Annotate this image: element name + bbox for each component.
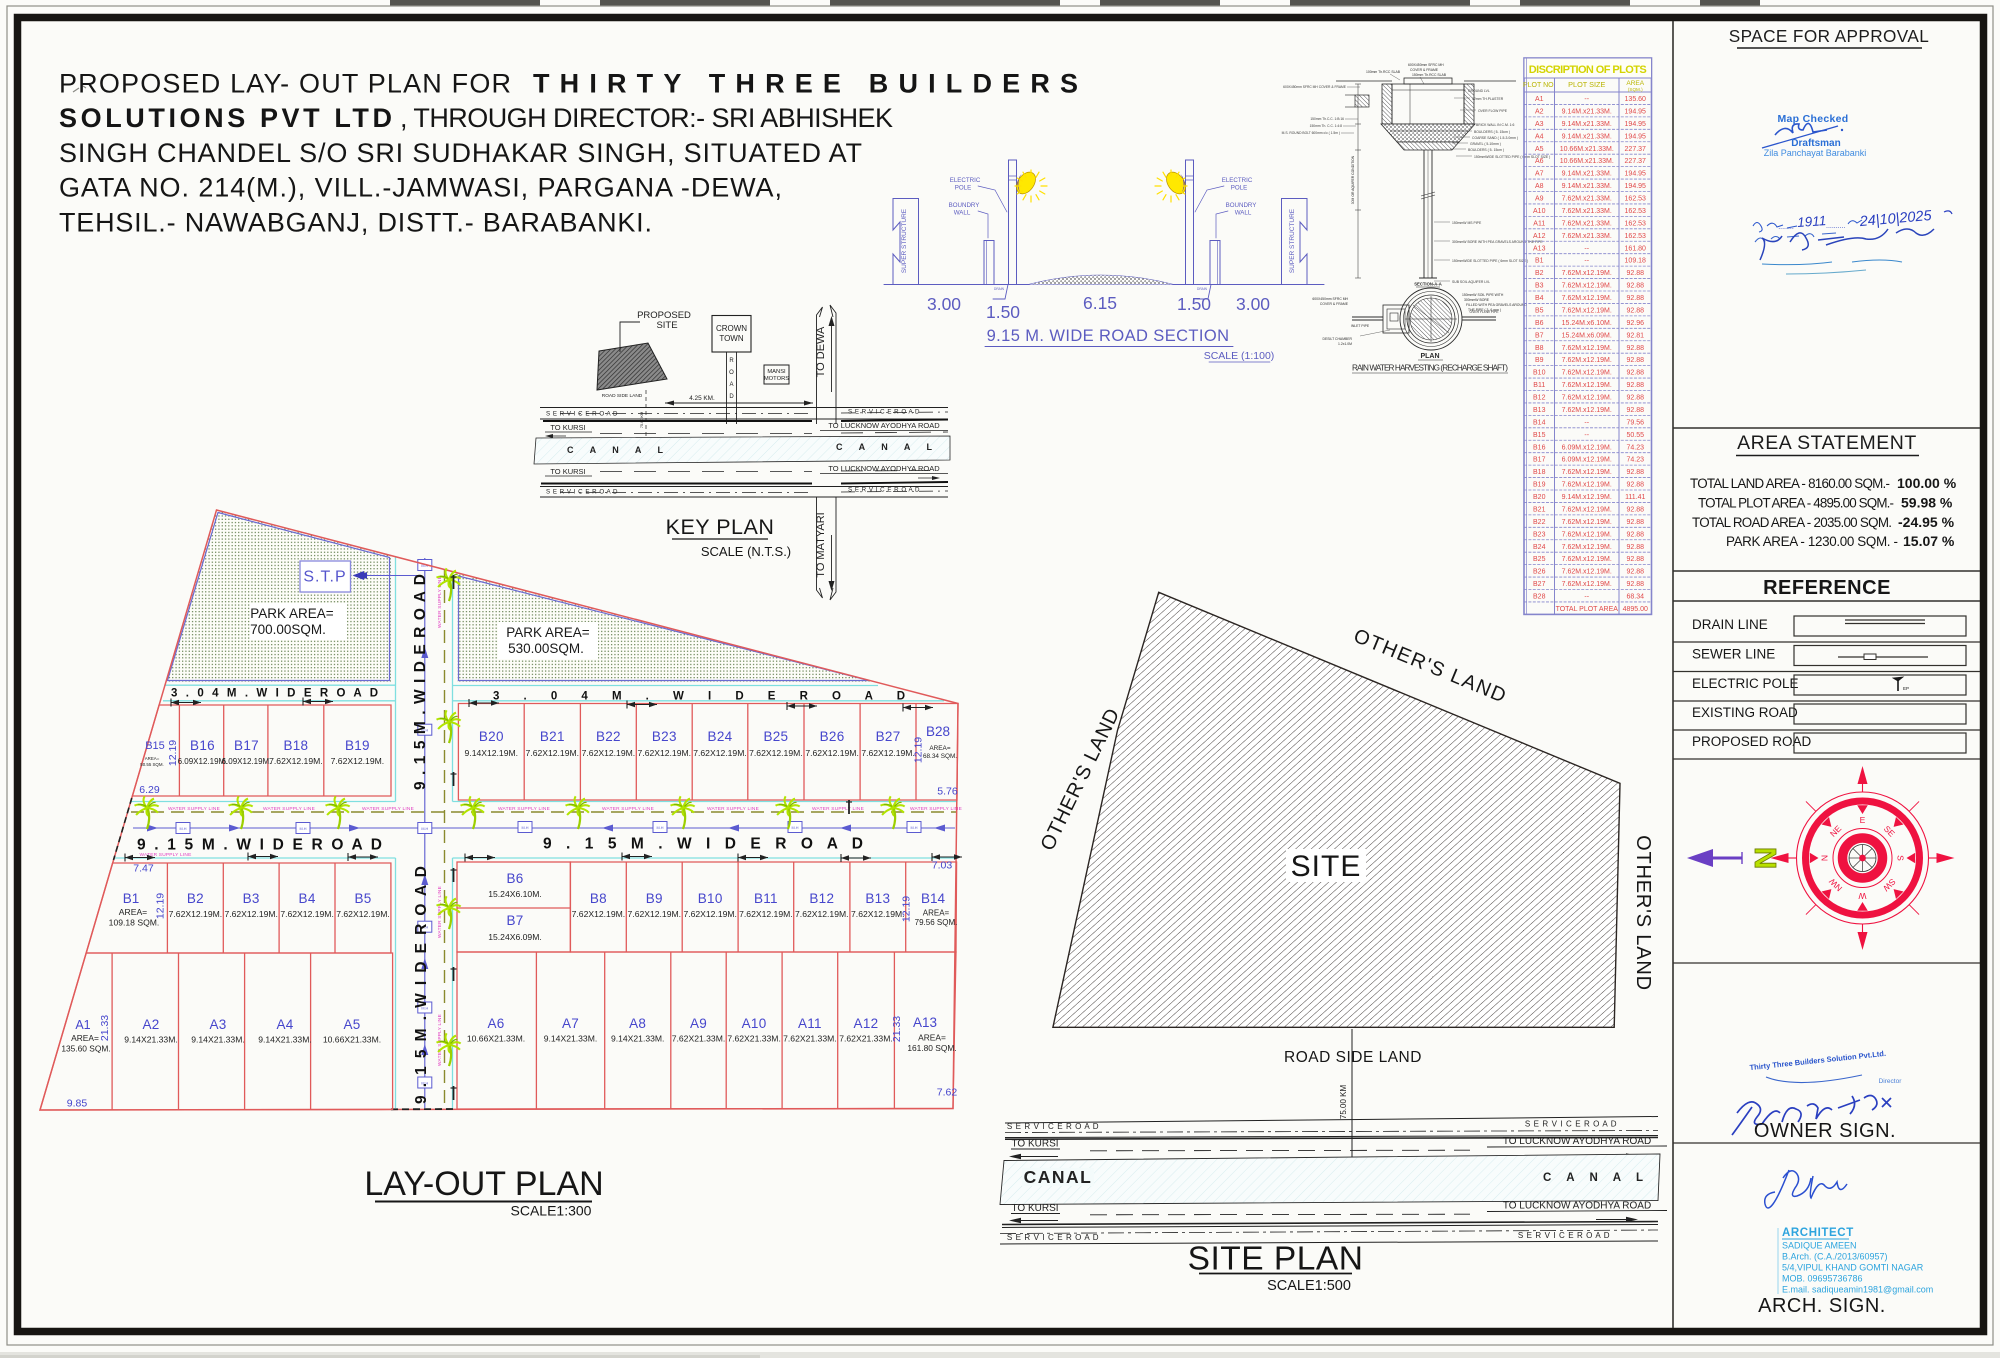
svg-text:6.09X12.19M.: 6.09X12.19M. xyxy=(178,757,228,766)
svg-text:A3: A3 xyxy=(1535,121,1544,128)
svg-text:7.62M.x21.33M.: 7.62M.x21.33M. xyxy=(1562,220,1612,227)
svg-text:SADIQUE AMEEN: SADIQUE AMEEN xyxy=(1782,1241,1857,1251)
svg-text:SITE: SITE xyxy=(1291,850,1362,883)
svg-text:B7: B7 xyxy=(1535,332,1544,339)
svg-text:CROWN: CROWN xyxy=(716,324,747,333)
svg-text:POLE: POLE xyxy=(1231,185,1248,192)
svg-text:150mm Th. C.C. 1:4:8: 150mm Th. C.C. 1:4:8 xyxy=(1310,124,1343,128)
svg-text:S E R V I C E R O A D: S E R V I C E R O A D xyxy=(848,409,920,416)
svg-text:15.24X6.10M.: 15.24X6.10M. xyxy=(488,889,542,899)
svg-text:7.62X12.19M.: 7.62X12.19M. xyxy=(582,748,636,758)
svg-text:161.80: 161.80 xyxy=(1625,245,1647,252)
svg-text:B12: B12 xyxy=(1533,395,1546,402)
svg-text:BOUNDRY: BOUNDRY xyxy=(949,202,980,209)
svg-text:SECTION-A-A: SECTION-A-A xyxy=(1414,282,1441,287)
svg-text:SCALE (N.T.S.): SCALE (N.T.S.) xyxy=(701,544,791,559)
svg-text:A2: A2 xyxy=(1535,108,1544,115)
svg-text:TOWN: TOWN xyxy=(719,334,744,343)
svg-text:150mm Th.C.C. 1:B:16: 150mm Th.C.C. 1:B:16 xyxy=(1310,117,1344,121)
svg-text:15.24M.x6.10M.: 15.24M.x6.10M. xyxy=(1562,320,1612,327)
svg-text:68.34: 68.34 xyxy=(1626,594,1644,601)
svg-text:B.Arch. (C.A./2013/60957): B.Arch. (C.A./2013/60957) xyxy=(1782,1252,1888,1262)
svg-text:92.96: 92.96 xyxy=(1626,320,1644,327)
svg-text:B27: B27 xyxy=(876,729,901,744)
svg-text:SITE PLAN: SITE PLAN xyxy=(1188,1241,1364,1278)
svg-text:RAIN WATER HARVESTING (RECH: RAIN WATER HARVESTING (RECHARGE SHAFT) xyxy=(1352,364,1508,373)
svg-text:92.88: 92.88 xyxy=(1626,544,1644,551)
svg-text:D: D xyxy=(729,394,734,400)
svg-text:7.62M.x12.19M.: 7.62M.x12.19M. xyxy=(1562,395,1612,402)
svg-text:7.62X12.19M.: 7.62X12.19M. xyxy=(795,909,849,919)
svg-text:600X450mm SFRC MH: 600X450mm SFRC MH xyxy=(1408,63,1444,67)
svg-text:7.62M.x12.19M.: 7.62M.x12.19M. xyxy=(1562,295,1612,302)
svg-text:MOTORS: MOTORS xyxy=(764,376,789,382)
svg-text:A7: A7 xyxy=(562,1016,579,1031)
svg-text:7.62X12.19M.: 7.62X12.19M. xyxy=(269,756,323,766)
svg-text:REFERENCE: REFERENCE xyxy=(1763,577,1891,599)
svg-text:161.80 SQM.: 161.80 SQM. xyxy=(907,1043,956,1053)
svg-text:C A N A L: C A N A L xyxy=(1543,1172,1643,1184)
svg-text:B2: B2 xyxy=(1535,270,1544,277)
svg-text:7.62X12.19M.: 7.62X12.19M. xyxy=(861,748,915,758)
svg-text:B9: B9 xyxy=(1535,357,1544,364)
svg-text:A13: A13 xyxy=(1533,245,1546,252)
svg-text:AREA=: AREA= xyxy=(929,745,950,752)
svg-text:..........: .......... xyxy=(1826,223,1846,230)
svg-text:B22: B22 xyxy=(1533,519,1546,526)
svg-text:WATER SUPPLY LINE: WATER SUPPLY LINE xyxy=(812,806,864,812)
svg-text:A10: A10 xyxy=(742,1016,767,1031)
svg-text:92.88: 92.88 xyxy=(1626,531,1644,538)
svg-text:B18: B18 xyxy=(283,738,308,753)
svg-text:A1: A1 xyxy=(75,1018,90,1032)
svg-text:7.62X12.19M.: 7.62X12.19M. xyxy=(693,748,747,758)
svg-text:7.62M.x12.19M.: 7.62M.x12.19M. xyxy=(1562,531,1612,538)
svg-text:B16: B16 xyxy=(190,738,215,753)
svg-text:9.14M.x21.33M.: 9.14M.x21.33M. xyxy=(1562,133,1612,140)
svg-text:7.62M.x12.19M.: 7.62M.x12.19M. xyxy=(1562,469,1612,476)
svg-text:227.37: 227.37 xyxy=(1625,158,1647,165)
svg-text:AREA=: AREA= xyxy=(918,1033,946,1043)
svg-text:7.62M.x21.33M.: 7.62M.x21.33M. xyxy=(1562,233,1612,240)
svg-text:6.29: 6.29 xyxy=(139,784,160,796)
svg-text:ROAD SIDE LAND: ROAD SIDE LAND xyxy=(1284,1049,1422,1066)
svg-text:92.88: 92.88 xyxy=(1626,357,1644,364)
svg-text:7.62M.x12.19M.: 7.62M.x12.19M. xyxy=(1562,283,1612,290)
svg-text:WATER SUPPLY LINE: WATER SUPPLY LINE xyxy=(498,806,550,812)
svg-text:N: N xyxy=(1748,847,1783,869)
svg-text:Director: Director xyxy=(1879,1078,1903,1085)
svg-text:7.62M.x12.19M.: 7.62M.x12.19M. xyxy=(1562,307,1612,314)
svg-text:9 . 1 5 M . W I D E R O: 9 . 1 5 M . W I D E R O A D xyxy=(137,837,382,854)
svg-text:FILLED WITH PEA GRAVELS AROUND: FILLED WITH PEA GRAVELS AROUND xyxy=(1466,303,1527,307)
svg-text:9.14X21.33M.: 9.14X21.33M. xyxy=(258,1035,312,1045)
svg-text:B28: B28 xyxy=(1533,594,1546,601)
svg-text:--: -- xyxy=(1584,96,1589,103)
svg-text:WALL: WALL xyxy=(1235,210,1252,217)
svg-text:150mmW SOIL PIPE WITH: 150mmW SOIL PIPE WITH xyxy=(1462,293,1504,297)
svg-text:7.62X21.33M.: 7.62X21.33M. xyxy=(839,1034,893,1044)
svg-text:-24.95 %: -24.95 % xyxy=(1898,514,1955,530)
svg-text:5/4,VIPUL KHAND GOMTI NAGAR: 5/4,VIPUL KHAND GOMTI NAGAR xyxy=(1782,1263,1924,1273)
svg-text:700.00SQM.: 700.00SQM. xyxy=(250,622,326,637)
svg-text:7.62M.x12.19M.: 7.62M.x12.19M. xyxy=(1562,345,1612,352)
svg-text:A8: A8 xyxy=(629,1016,646,1031)
svg-text:300mmW BORE WITH PEA GRAVELS A: 300mmW BORE WITH PEA GRAVELS AROUND THE … xyxy=(1452,240,1543,244)
svg-text:92.88: 92.88 xyxy=(1626,307,1644,314)
svg-text:135.60 SQM.: 135.60 SQM. xyxy=(61,1044,110,1054)
svg-text:B23: B23 xyxy=(1533,531,1546,538)
svg-text:92.88: 92.88 xyxy=(1626,506,1644,513)
svg-text:B11: B11 xyxy=(1533,382,1545,389)
svg-text:E.mail. sadiqueamin1981@gmail.: E.mail. sadiqueamin1981@gmail.com xyxy=(1782,1285,1933,1295)
svg-text:Map Checked: Map Checked xyxy=(1778,113,1849,125)
svg-text:C A N A L: C A N A L xyxy=(567,445,664,455)
svg-text:162.53: 162.53 xyxy=(1625,220,1647,227)
svg-text:SCALE (1:100): SCALE (1:100) xyxy=(1204,350,1275,362)
svg-text:92.88: 92.88 xyxy=(1626,345,1644,352)
svg-text:B19: B19 xyxy=(1533,482,1546,489)
svg-text:B21: B21 xyxy=(1533,506,1546,513)
svg-text:B17: B17 xyxy=(234,738,259,753)
svg-text:R: R xyxy=(729,358,734,364)
svg-text:600X450mm SFRC MH: 600X450mm SFRC MH xyxy=(1312,297,1348,301)
svg-text:7.62X12.19M.: 7.62X12.19M. xyxy=(851,909,905,919)
svg-text:SEWER LINE: SEWER LINE xyxy=(1692,647,1775,662)
svg-text:194.95: 194.95 xyxy=(1625,183,1647,190)
svg-text:12mm TH.PLASTER: 12mm TH.PLASTER xyxy=(1472,97,1504,101)
svg-text:PARK AREA=: PARK AREA= xyxy=(506,625,590,640)
svg-text:1.50: 1.50 xyxy=(986,302,1020,322)
svg-text:7.62X12.19M.: 7.62X12.19M. xyxy=(683,909,737,919)
svg-text:M.S. ROUND BOLT 600mm c/c ( 1.: M.S. ROUND BOLT 600mm c/c ( 1.5m ) xyxy=(1282,131,1340,135)
svg-text:BOULDERS ( 5- 15cm ): BOULDERS ( 5- 15cm ) xyxy=(1474,130,1510,134)
svg-text:POLE: POLE xyxy=(955,185,972,192)
svg-text:4.25 KM.: 4.25 KM. xyxy=(689,395,715,402)
svg-text:75.00 KM: 75.00 KM xyxy=(640,412,644,428)
svg-text:B7: B7 xyxy=(506,913,523,928)
svg-text:B26: B26 xyxy=(1533,569,1546,576)
svg-text:1.2x1.0M: 1.2x1.0M xyxy=(1338,342,1352,346)
svg-text:B8: B8 xyxy=(590,891,607,906)
svg-text:7.62M.x21.33M.: 7.62M.x21.33M. xyxy=(1562,208,1612,215)
svg-text:CANAL: CANAL xyxy=(1024,1167,1093,1187)
svg-text:GATA NO. 214(M.), VILL.-JAMWAS: GATA NO. 214(M.), VILL.-JAMWASI, PARGANA… xyxy=(59,173,782,203)
svg-text:M.H: M.H xyxy=(657,826,664,830)
svg-text:150mmW MS PIPE: 150mmW MS PIPE xyxy=(1452,221,1482,225)
svg-text:7.62M.x12.19M.: 7.62M.x12.19M. xyxy=(1562,506,1612,513)
svg-text:--: -- xyxy=(1584,594,1589,601)
svg-text:PLOT NO.: PLOT NO. xyxy=(1523,82,1556,89)
svg-text:9.85: 9.85 xyxy=(67,1098,88,1110)
svg-text:ROAD SIDE LAND: ROAD SIDE LAND xyxy=(602,393,643,399)
svg-text:7.62M.x12.19M.: 7.62M.x12.19M. xyxy=(1562,569,1612,576)
svg-text:B4: B4 xyxy=(299,891,316,906)
svg-text:M.H: M.H xyxy=(300,827,307,831)
svg-text:BRICK WALL IN C.M. 1:6: BRICK WALL IN C.M. 1:6 xyxy=(1476,123,1514,127)
svg-text:92.88: 92.88 xyxy=(1626,482,1644,489)
svg-text:1911: 1911 xyxy=(1797,213,1827,230)
svg-text:194.95: 194.95 xyxy=(1625,133,1647,140)
svg-text:B12: B12 xyxy=(809,891,834,906)
svg-text:M.H: M.H xyxy=(180,827,187,831)
svg-text:N: N xyxy=(1820,855,1830,861)
svg-text:TO KURSI: TO KURSI xyxy=(1011,1139,1058,1150)
svg-text:TO KURSI: TO KURSI xyxy=(550,423,585,432)
svg-text:6.09M.x12.19M.: 6.09M.x12.19M. xyxy=(1562,457,1612,464)
svg-text:A4: A4 xyxy=(276,1017,293,1032)
svg-text:92.88: 92.88 xyxy=(1626,581,1644,588)
svg-text:194.95: 194.95 xyxy=(1625,121,1647,128)
svg-text:--: -- xyxy=(1584,245,1589,252)
svg-text:S E R V I C E R O A D: S E R V I C E R O A D xyxy=(848,487,920,494)
svg-text:92.81: 92.81 xyxy=(1626,332,1644,339)
svg-text:9.14M.x21.33M.: 9.14M.x21.33M. xyxy=(1562,121,1612,128)
svg-text:A9: A9 xyxy=(690,1016,707,1031)
svg-text:7.62M.x12.19M.: 7.62M.x12.19M. xyxy=(1562,482,1612,489)
svg-text:A: A xyxy=(729,382,733,388)
svg-text:WATER SUPPLY LINE: WATER SUPPLY LINE xyxy=(437,1014,443,1066)
svg-text:TOTAL LAND AREA - 8160.00 S: TOTAL LAND AREA - 8160.00 SQM.- xyxy=(1690,476,1890,491)
svg-text:B6: B6 xyxy=(1535,320,1544,327)
svg-text:TO KURSI: TO KURSI xyxy=(550,467,585,476)
svg-text:92.88: 92.88 xyxy=(1626,407,1644,414)
svg-text:A3: A3 xyxy=(209,1017,226,1032)
svg-text:7.62X21.33M.: 7.62X21.33M. xyxy=(672,1034,726,1044)
svg-text:AREA=: AREA= xyxy=(923,909,950,918)
svg-text:7.62: 7.62 xyxy=(937,1087,958,1099)
svg-text:92.88: 92.88 xyxy=(1626,270,1644,277)
svg-text:9.14M.x21.33M.: 9.14M.x21.33M. xyxy=(1562,171,1612,178)
svg-text:B1: B1 xyxy=(123,891,140,906)
svg-text:7.62X12.19M.: 7.62X12.19M. xyxy=(331,756,385,766)
svg-text:B10: B10 xyxy=(1533,370,1546,377)
svg-text:TO DEWA: TO DEWA xyxy=(815,326,827,377)
svg-text:30M OR AQUIFER CONDITION: 30M OR AQUIFER CONDITION xyxy=(1351,155,1355,204)
svg-text:LAY-OUT PLAN: LAY-OUT PLAN xyxy=(364,1165,603,1203)
svg-text:TO MATYARI: TO MATYARI xyxy=(815,512,827,577)
svg-text:7.62M.x12.19M.: 7.62M.x12.19M. xyxy=(1562,544,1612,551)
svg-text:COVER & FRAME: COVER & FRAME xyxy=(1320,302,1349,306)
svg-text:92.88: 92.88 xyxy=(1626,519,1644,526)
svg-text:TO LUCKNOW AYODHYA ROAD: TO LUCKNOW AYODHYA ROAD xyxy=(1503,1201,1651,1212)
svg-text:227.37: 227.37 xyxy=(1625,146,1647,153)
svg-text:S E R V I C E R O A D: S E R V I C E R O A D xyxy=(1007,1122,1099,1131)
svg-text:7.62M.x12.19M.: 7.62M.x12.19M. xyxy=(1562,357,1612,364)
svg-text:A1: A1 xyxy=(1535,96,1544,103)
svg-text:PLOT SIZE: PLOT SIZE xyxy=(1568,80,1605,89)
svg-text:7.62X12.19M.: 7.62X12.19M. xyxy=(336,909,390,919)
svg-text:A9: A9 xyxy=(1535,196,1544,203)
svg-text:A11: A11 xyxy=(1533,220,1545,227)
svg-text:AREA STATEMENT: AREA STATEMENT xyxy=(1737,432,1917,454)
svg-text:74.23: 74.23 xyxy=(1626,444,1644,451)
svg-text:E: E xyxy=(1860,815,1866,825)
svg-text:12.19: 12.19 xyxy=(155,893,167,919)
svg-text:100mm Th.RCC SLAB: 100mm Th.RCC SLAB xyxy=(1366,70,1401,74)
svg-text:150mmWIDE SLOTTED PIPE ( 6mm S: 150mmWIDE SLOTTED PIPE ( 6mm SLOT SIZE ) xyxy=(1452,259,1528,263)
svg-text:74.23: 74.23 xyxy=(1626,457,1644,464)
svg-text:A2: A2 xyxy=(142,1017,159,1032)
svg-text:7.03: 7.03 xyxy=(932,860,953,872)
svg-text:TEHSIL.- NAWABGANJ, DISTT.- BA: TEHSIL.- NAWABGANJ, DISTT.- BARABANKI. xyxy=(59,207,652,237)
svg-text:162.53: 162.53 xyxy=(1625,233,1647,240)
svg-text:S E R V I C E R O A D: S E R V I C E R O A D xyxy=(546,411,618,418)
svg-text:92.88: 92.88 xyxy=(1626,382,1644,389)
svg-text:9 . 1 5 M . W I D E R O: 9 . 1 5 M . W I D E R O A D xyxy=(413,866,430,1104)
svg-text:WATER SUPPLY LINE: WATER SUPPLY LINE xyxy=(707,806,759,812)
svg-text:7.62X12.19M.: 7.62X12.19M. xyxy=(739,909,793,919)
svg-text:B3: B3 xyxy=(243,891,260,906)
svg-text:9.14X21.33M.: 9.14X21.33M. xyxy=(611,1034,665,1044)
svg-text:TO LUCKNOW AYODHYA ROAD: TO LUCKNOW AYODHYA ROAD xyxy=(828,464,940,473)
svg-text:21.33: 21.33 xyxy=(891,1016,903,1042)
svg-text:MOB. 09695736786: MOB. 09695736786 xyxy=(1782,1274,1863,1284)
svg-text:79.56: 79.56 xyxy=(1626,419,1644,426)
svg-text:B20: B20 xyxy=(479,729,504,744)
svg-text:A6: A6 xyxy=(1535,158,1544,165)
svg-text:B10: B10 xyxy=(698,891,723,906)
svg-text:SITE: SITE xyxy=(656,320,677,331)
svg-text:6.09X12.19M.: 6.09X12.19M. xyxy=(222,757,272,766)
svg-text:B24: B24 xyxy=(708,729,733,744)
svg-text:300mmW BORE: 300mmW BORE xyxy=(1464,298,1490,302)
svg-text:SUB SOIL AQUIFER LVL: SUB SOIL AQUIFER LVL xyxy=(1452,280,1490,284)
svg-text:B25: B25 xyxy=(1533,556,1546,563)
svg-text:15.24X6.09M.: 15.24X6.09M. xyxy=(488,932,542,942)
svg-text:ELECTRIC: ELECTRIC xyxy=(1222,177,1253,184)
svg-text:DESILT CHAMBER: DESILT CHAMBER xyxy=(1323,337,1353,341)
svg-text:KEY PLAN: KEY PLAN xyxy=(666,515,775,539)
svg-text:A10: A10 xyxy=(1533,208,1546,215)
svg-text:7.62X12.19M.: 7.62X12.19M. xyxy=(169,909,223,919)
svg-text:BOUNDRY: BOUNDRY xyxy=(1226,202,1257,209)
svg-text:WATER SUPPLY LINE: WATER SUPPLY LINE xyxy=(362,806,414,812)
svg-text:B13: B13 xyxy=(1533,407,1546,414)
svg-text:, THROUGH DIRECTOR:- SRI ABHIS: , THROUGH DIRECTOR:- SRI ABHISHEK xyxy=(400,103,893,133)
svg-text:S E R V I C E R O A D: S E R V I C E R O A D xyxy=(546,489,618,496)
svg-text:135.60: 135.60 xyxy=(1625,96,1647,103)
svg-text:M.H: M.H xyxy=(522,826,529,830)
svg-text:GRAVEL ( 5-10mm ): GRAVEL ( 5-10mm ) xyxy=(1470,142,1501,146)
svg-text:WALL: WALL xyxy=(954,210,971,217)
svg-text:50.55 SQM.: 50.55 SQM. xyxy=(140,762,163,767)
svg-text:........: ........ xyxy=(1778,224,1794,231)
svg-text:7.62X12.19M.: 7.62X12.19M. xyxy=(628,909,682,919)
svg-text:--: -- xyxy=(1584,432,1589,439)
svg-text:7.62M.x21.33M.: 7.62M.x21.33M. xyxy=(1562,196,1612,203)
svg-text:7.62X21.33M.: 7.62X21.33M. xyxy=(783,1034,837,1044)
svg-text:THE PIPE ( 3- 6 mm ): THE PIPE ( 3- 6 mm ) xyxy=(1468,308,1501,312)
svg-text:92.88: 92.88 xyxy=(1626,395,1644,402)
svg-text:59.98 %: 59.98 % xyxy=(1901,495,1953,511)
svg-text:SINGH CHANDEL S/O SRI SUDHAKAR: SINGH CHANDEL S/O SRI SUDHAKAR SINGH, SI… xyxy=(59,138,862,168)
svg-text:ARCHITECT: ARCHITECT xyxy=(1782,1227,1854,1239)
svg-text:7.62M.x12.19M.: 7.62M.x12.19M. xyxy=(1562,270,1612,277)
svg-text:194.95: 194.95 xyxy=(1625,171,1647,178)
svg-text:TO LUCKNOW AYODHYA ROAD: TO LUCKNOW AYODHYA ROAD xyxy=(1503,1136,1651,1147)
svg-text:7.62M.x12.19M.: 7.62M.x12.19M. xyxy=(1562,519,1612,526)
svg-text:A5: A5 xyxy=(1535,146,1544,153)
svg-text:WATER SUPPLY LINE: WATER SUPPLY LINE xyxy=(910,806,962,812)
svg-text:DRAIN LINE: DRAIN LINE xyxy=(1692,617,1768,632)
svg-text:7.62M.x12.19M.: 7.62M.x12.19M. xyxy=(1562,370,1612,377)
svg-text:7.47: 7.47 xyxy=(133,863,154,875)
svg-text:9 . 1 5 M . W I D E R O: 9 . 1 5 M . W I D E R O A D xyxy=(412,574,429,790)
svg-text:TO KURSI: TO KURSI xyxy=(1011,1203,1058,1214)
svg-text:92.88: 92.88 xyxy=(1626,469,1644,476)
svg-text:B13: B13 xyxy=(865,891,890,906)
svg-text:111.41: 111.41 xyxy=(1625,494,1645,501)
svg-text:TOTAL PLOT AREA - 4895.00 SQ: TOTAL PLOT AREA - 4895.00 SQM.- xyxy=(1698,496,1894,511)
svg-text:7.62X12.19M.: 7.62X12.19M. xyxy=(638,748,692,758)
svg-text:109.18 SQM.: 109.18 SQM. xyxy=(109,918,160,928)
svg-text:B4: B4 xyxy=(1535,295,1544,302)
svg-text:DISCRIPTION OF PLOTS: DISCRIPTION OF PLOTS xyxy=(1529,64,1647,76)
svg-text:DRAIN: DRAIN xyxy=(994,287,1005,291)
svg-text:SPACE FOR APPROVAL: SPACE FOR APPROVAL xyxy=(1729,26,1929,46)
svg-text:9.14M.x21.33M.: 9.14M.x21.33M. xyxy=(1562,108,1612,115)
svg-text:A5: A5 xyxy=(343,1017,360,1032)
svg-text:194.95: 194.95 xyxy=(1625,108,1647,115)
svg-text:9.14X12.19M.: 9.14X12.19M. xyxy=(465,748,519,758)
svg-text:SCALE1:300: SCALE1:300 xyxy=(511,1203,592,1219)
svg-text:OWNER SIGN.: OWNER SIGN. xyxy=(1754,1120,1896,1142)
svg-text:92.88: 92.88 xyxy=(1626,370,1644,377)
svg-text:15.07 %: 15.07 % xyxy=(1903,533,1955,549)
svg-text:M.H: M.H xyxy=(792,826,799,830)
svg-text:600X450mm SFRC MH COVER & FRAM: 600X450mm SFRC MH COVER & FRAME xyxy=(1283,85,1347,89)
svg-text:AREA=: AREA= xyxy=(119,907,147,917)
svg-text:3.00: 3.00 xyxy=(1236,294,1270,314)
svg-text:B19: B19 xyxy=(345,738,370,753)
svg-text:S: S xyxy=(1896,855,1906,861)
svg-text:162.53: 162.53 xyxy=(1625,196,1647,203)
svg-text:109.18: 109.18 xyxy=(1625,258,1647,265)
svg-text:162.53: 162.53 xyxy=(1625,208,1647,215)
svg-text:--: -- xyxy=(1584,419,1589,426)
svg-text:WATER SUPPLY LINE: WATER SUPPLY LINE xyxy=(263,806,315,812)
svg-text:BOULDERS ( 5- 15cm ): BOULDERS ( 5- 15cm ) xyxy=(1468,148,1504,152)
svg-text:B15: B15 xyxy=(1533,432,1546,439)
svg-text:A12: A12 xyxy=(854,1016,879,1031)
svg-text:COVER & FRAME: COVER & FRAME xyxy=(1410,68,1439,72)
svg-text:9.14X21.33M.: 9.14X21.33M. xyxy=(191,1035,245,1045)
svg-text:7.62M.x12.19M.: 7.62M.x12.19M. xyxy=(1562,581,1612,588)
svg-text:AREA=: AREA= xyxy=(145,756,160,761)
svg-text:7.62X21.33M.: 7.62X21.33M. xyxy=(727,1034,781,1044)
svg-text:92.88: 92.88 xyxy=(1626,569,1644,576)
svg-text:7.62X12.19M.: 7.62X12.19M. xyxy=(224,909,278,919)
svg-text:68.34 SQM.: 68.34 SQM. xyxy=(923,753,957,760)
svg-text:B14: B14 xyxy=(921,891,946,906)
svg-text:S.T.P: S.T.P xyxy=(303,569,346,586)
svg-text:7.62M.x12.19M.: 7.62M.x12.19M. xyxy=(1562,382,1612,389)
svg-text:150mm Th.RCC SLAB: 150mm Th.RCC SLAB xyxy=(1412,73,1447,77)
svg-text:MANSI: MANSI xyxy=(767,369,786,375)
svg-text:WATER SUPPLY LINE: WATER SUPPLY LINE xyxy=(602,806,654,812)
svg-text:B22: B22 xyxy=(596,729,621,744)
svg-text:B9: B9 xyxy=(646,891,663,906)
svg-text:DRAIN: DRAIN xyxy=(1197,287,1208,291)
svg-text:9.14M.x21.33M.: 9.14M.x21.33M. xyxy=(1562,183,1612,190)
svg-text:ELECTRIC POLE: ELECTRIC POLE xyxy=(1692,676,1799,691)
svg-text:A13: A13 xyxy=(913,1015,937,1030)
svg-text:EP: EP xyxy=(1903,686,1909,691)
svg-text:9.14X21.33M.: 9.14X21.33M. xyxy=(544,1034,598,1044)
svg-text:A4: A4 xyxy=(1535,133,1544,140)
svg-text:O: O xyxy=(729,370,734,376)
